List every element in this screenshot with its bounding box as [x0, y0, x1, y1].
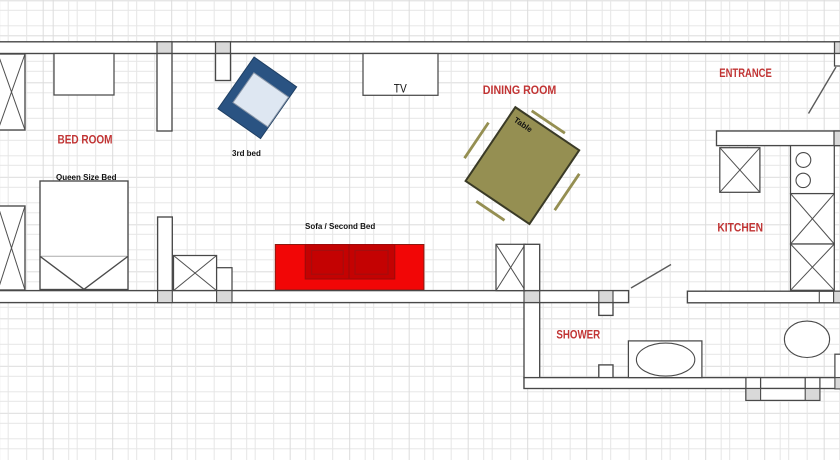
- svg-text:ENTRANCE: ENTRANCE: [719, 66, 772, 80]
- svg-text:TV: TV: [394, 84, 407, 96]
- svg-text:SHOWER: SHOWER: [556, 328, 600, 342]
- svg-text:Sofa / Second Bed: Sofa / Second Bed: [305, 222, 375, 231]
- svg-text:BED ROOM: BED ROOM: [58, 133, 113, 147]
- svg-text:KITCHEN: KITCHEN: [717, 221, 763, 235]
- svg-text:DINING ROOM: DINING ROOM: [483, 83, 557, 97]
- svg-text:3rd bed: 3rd bed: [232, 149, 261, 158]
